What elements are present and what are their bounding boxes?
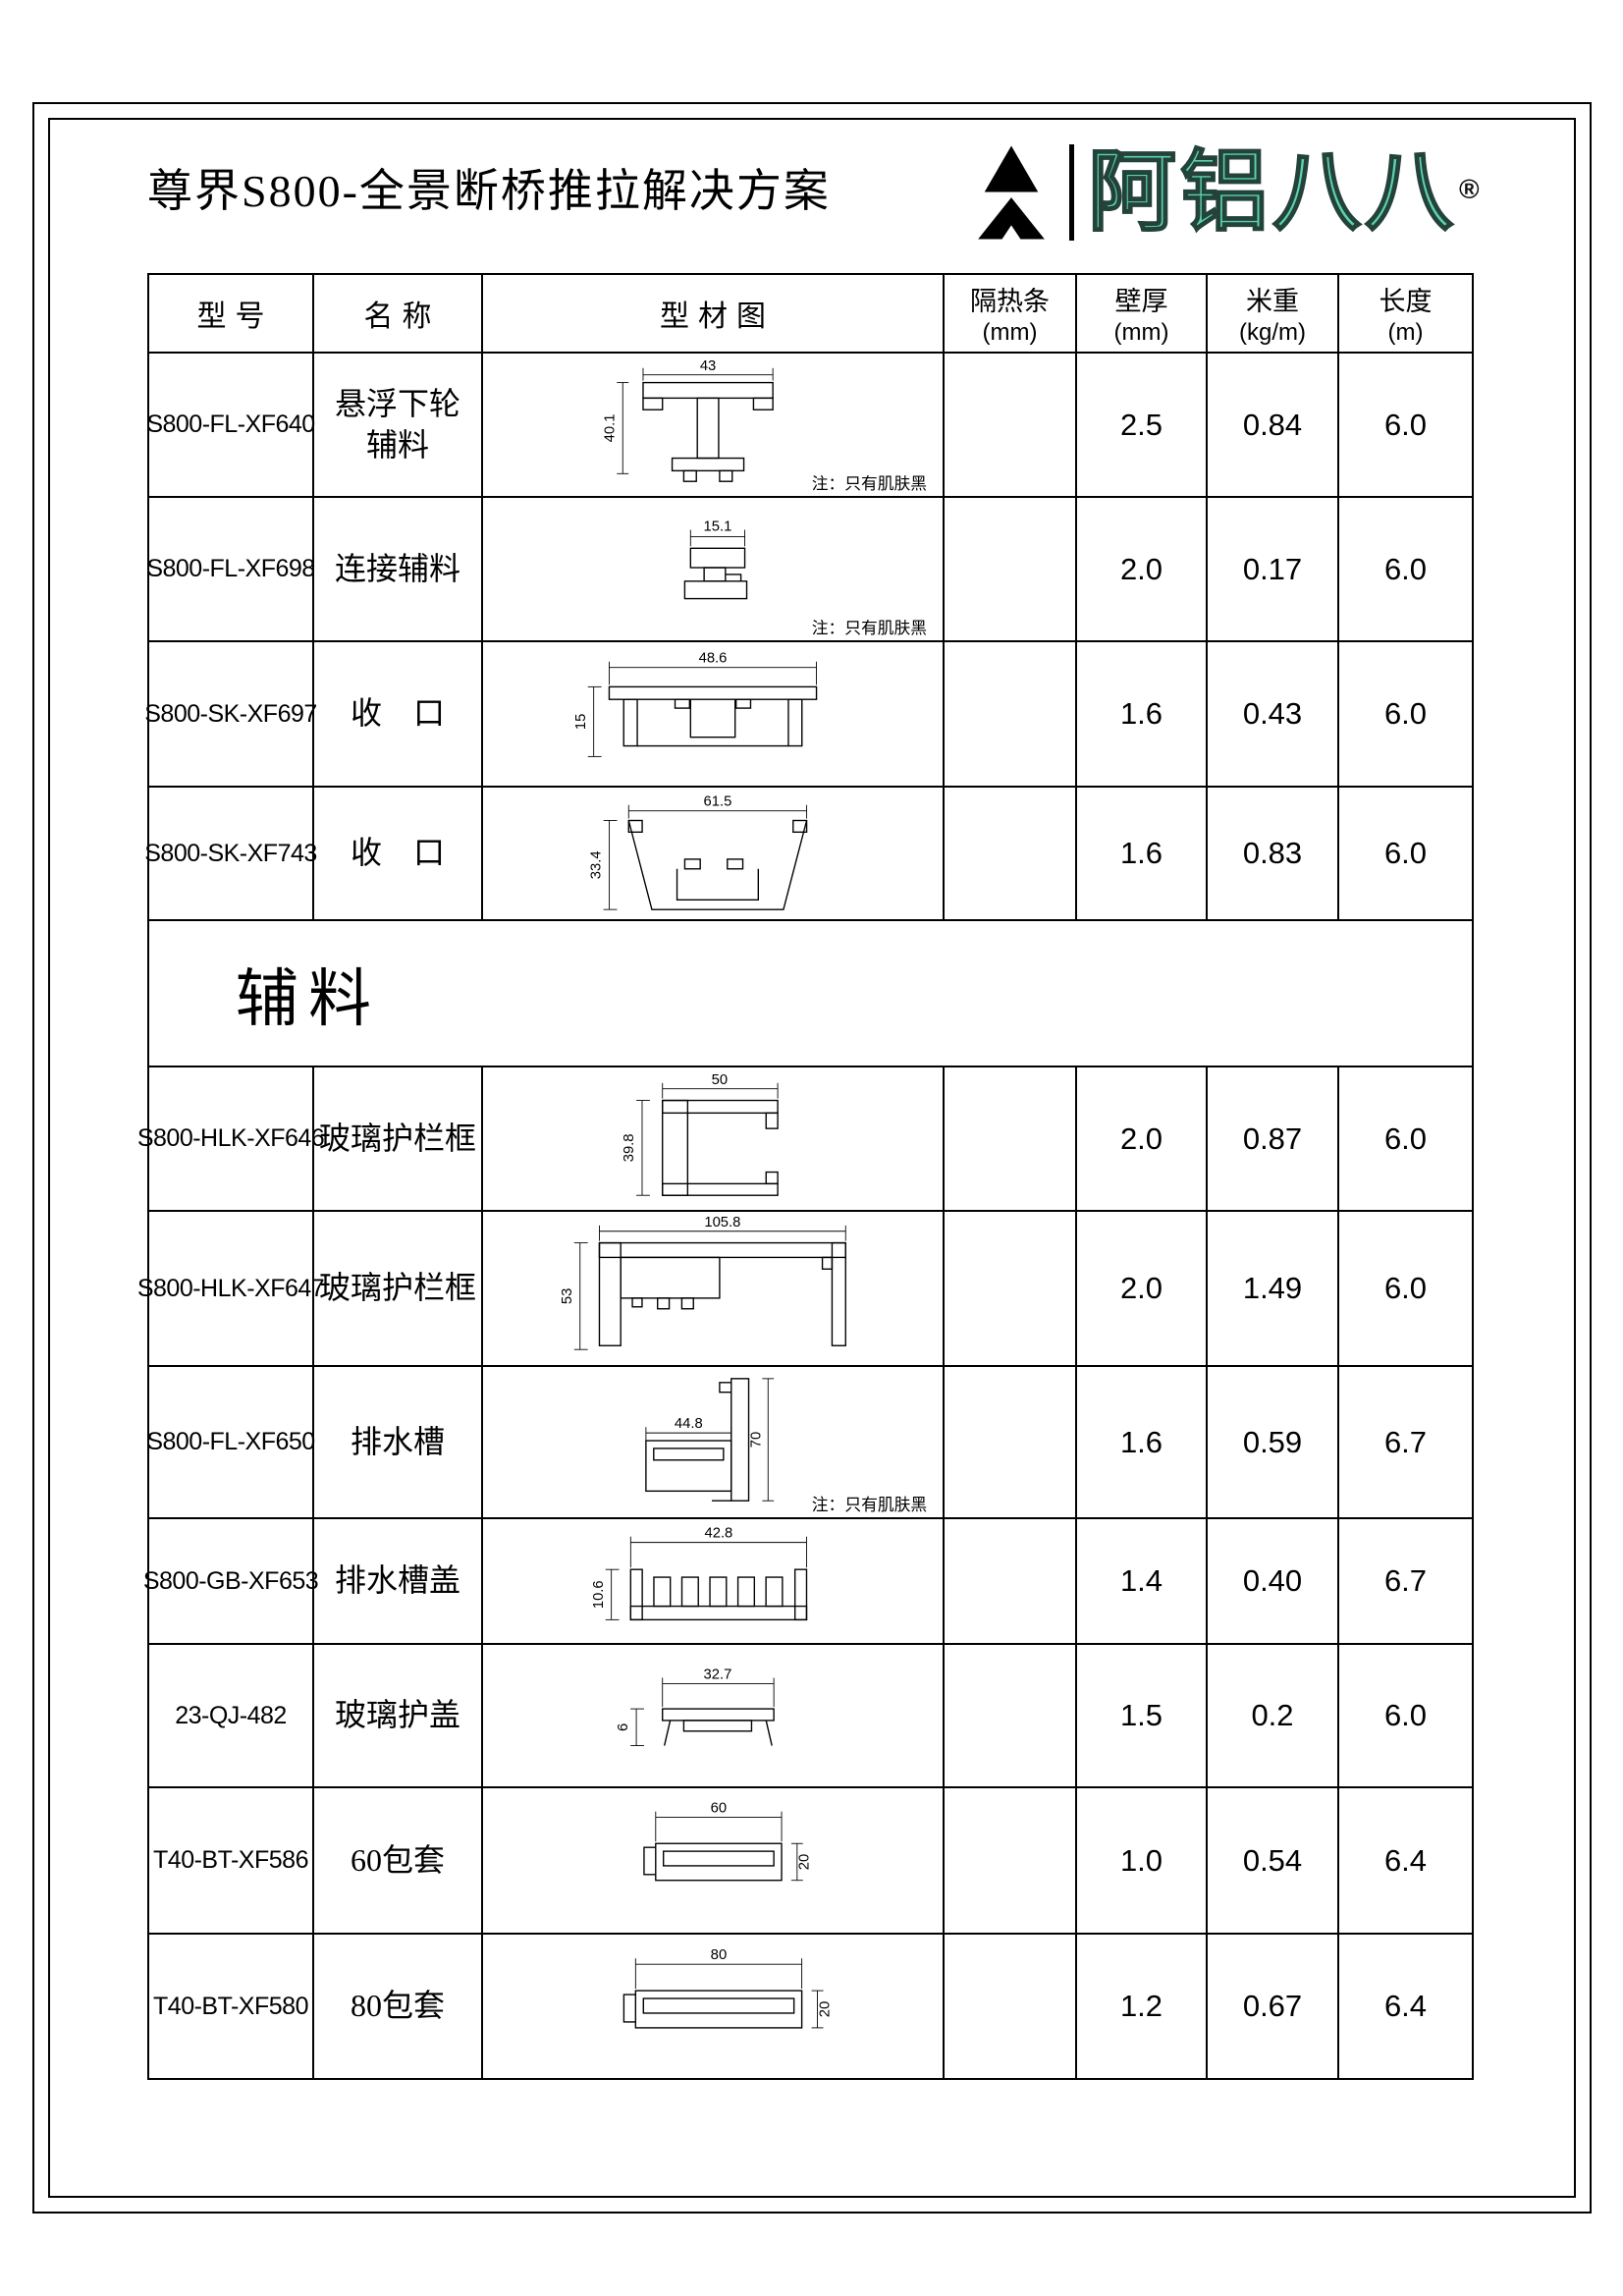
cell-profile-diagram: 15.1 注：只有肌肤黑	[483, 498, 945, 642]
brand-name: 阿铝八八®	[1088, 143, 1484, 242]
cell-insulation	[945, 1519, 1077, 1645]
drawing-sheet: 尊界S800-全景断桥推拉解决方案 阿铝八八® 型号 名称 型材图 隔热条 (m…	[0, 0, 1623, 2296]
cell-wall-thickness: 2.5	[1077, 354, 1208, 498]
profile-drawing: 105.8 53	[483, 1212, 943, 1365]
dim-height-label: 15	[573, 714, 589, 730]
cell-profile-diagram: 60 20	[483, 1788, 945, 1935]
col-header-name: 名称	[314, 275, 483, 354]
cell-profile-diagram: 105.8 53	[483, 1212, 945, 1367]
header-unit: (mm)	[1114, 319, 1169, 347]
profile-note: 注：只有肌肤黑	[812, 474, 927, 493]
brand-text: 阿铝八八	[1088, 143, 1457, 242]
dim-width-label: 105.8	[704, 1215, 740, 1230]
cell-insulation	[945, 1067, 1077, 1212]
cell-model: 23-QJ-482	[149, 1645, 314, 1788]
cell-model: T40-BT-XF586	[149, 1788, 314, 1935]
cell-wall-thickness: 1.5	[1077, 1645, 1208, 1788]
cell-name: 收 口	[314, 642, 483, 788]
header-label: 长度	[1380, 280, 1433, 318]
dim-width-label: 48.6	[699, 651, 728, 667]
profile-drawing: 48.6 15	[483, 642, 943, 786]
cell-wall-thickness: 2.0	[1077, 1067, 1208, 1212]
profile-drawing: 80 20	[483, 1935, 943, 2078]
cell-meter-weight: 0.2	[1208, 1645, 1339, 1788]
dim-height-label: 53	[560, 1288, 575, 1304]
dim-width-label: 60	[711, 1801, 727, 1817]
cell-profile-diagram: 42.8 10.6	[483, 1519, 945, 1645]
cell-model: S800-FL-XF698	[149, 498, 314, 642]
cell-name: 玻璃护栏框	[314, 1212, 483, 1367]
cell-meter-weight: 0.59	[1208, 1367, 1339, 1519]
header-label: 米重	[1246, 280, 1299, 318]
col-header-length: 长度 (m)	[1339, 275, 1472, 354]
cell-model: S800-HLK-XF646	[149, 1067, 314, 1212]
cell-insulation	[945, 1645, 1077, 1788]
cell-name: 玻璃护盖	[314, 1645, 483, 1788]
profile-spec-table: 型号 名称 型材图 隔热条 (mm) 壁厚 (mm) 米重 (kg/m) 长度 …	[147, 273, 1474, 2080]
name-line2: 辅料	[335, 425, 460, 466]
cell-name: 80包套	[314, 1935, 483, 2078]
dim-height-label: 39.8	[622, 1133, 637, 1162]
registered-mark: ®	[1459, 174, 1484, 204]
cell-profile-diagram: 61.5 33.4	[483, 788, 945, 921]
dim-height-label: 20	[797, 1854, 813, 1870]
cell-meter-weight: 1.49	[1208, 1212, 1339, 1367]
col-header-weight: 米重 (kg/m)	[1208, 275, 1339, 354]
header-label: 壁厚	[1115, 280, 1168, 318]
profile-drawing: 15.1 注：只有肌肤黑	[483, 498, 943, 640]
cell-insulation	[945, 498, 1077, 642]
cell-wall-thickness: 2.0	[1077, 498, 1208, 642]
dim-width-label: 80	[711, 1946, 728, 1963]
header-unit: (m)	[1388, 319, 1424, 347]
cell-wall-thickness: 1.6	[1077, 1367, 1208, 1519]
profile-drawing: 61.5 33.4	[483, 788, 943, 919]
dim-height-label: 40.1	[602, 414, 618, 443]
header-unit: (kg/m)	[1239, 319, 1306, 347]
cell-wall-thickness: 1.6	[1077, 788, 1208, 921]
cell-meter-weight: 0.17	[1208, 498, 1339, 642]
cell-profile-diagram: 43 40.1 注：只有肌肤黑	[483, 354, 945, 498]
profile-note: 注：只有肌肤黑	[812, 619, 927, 637]
cell-length: 6.0	[1339, 1645, 1472, 1788]
dim-width-label: 43	[700, 358, 716, 374]
dim-width-label: 42.8	[705, 1526, 733, 1542]
section-header-accessories: 辅料	[149, 921, 1472, 1067]
dim-height-label: 6	[616, 1723, 631, 1731]
cell-insulation	[945, 642, 1077, 788]
dim-width-label: 32.7	[704, 1667, 732, 1683]
cell-model: T40-BT-XF580	[149, 1935, 314, 2078]
header-label: 隔热条	[970, 280, 1050, 318]
dim-height-label: 70	[748, 1432, 764, 1448]
cell-model: S800-HLK-XF647	[149, 1212, 314, 1367]
cell-insulation	[945, 788, 1077, 921]
cell-profile-diagram: 50 39.8	[483, 1067, 945, 1212]
cell-name: 连接辅料	[314, 498, 483, 642]
col-header-wall: 壁厚 (mm)	[1077, 275, 1208, 354]
brand-logo: 阿铝八八®	[965, 143, 1484, 242]
cell-model: S800-SK-XF743	[149, 788, 314, 921]
col-header-model: 型号	[149, 275, 314, 354]
cell-wall-thickness: 1.4	[1077, 1519, 1208, 1645]
brand-triangle-icon	[965, 143, 1057, 242]
cell-model: S800-FL-XF650	[149, 1367, 314, 1519]
cell-wall-thickness: 1.0	[1077, 1788, 1208, 1935]
cell-insulation	[945, 354, 1077, 498]
cell-meter-weight: 0.40	[1208, 1519, 1339, 1645]
profile-drawing: 42.8 10.6	[483, 1519, 943, 1643]
cell-length: 6.4	[1339, 1935, 1472, 2078]
cell-name: 排水槽	[314, 1367, 483, 1519]
cell-meter-weight: 0.43	[1208, 642, 1339, 788]
profile-drawing: 32.7 6	[483, 1645, 943, 1786]
name-line1: 悬浮下轮	[335, 386, 460, 421]
cell-profile-diagram: 44.8 70 注：只有肌肤黑	[483, 1367, 945, 1519]
cell-model: S800-GB-XF653	[149, 1519, 314, 1645]
cell-wall-thickness: 1.2	[1077, 1935, 1208, 2078]
cell-meter-weight: 0.67	[1208, 1935, 1339, 2078]
cell-meter-weight: 0.84	[1208, 354, 1339, 498]
profile-drawing: 44.8 70 注：只有肌肤黑	[483, 1367, 943, 1517]
dim-width-label: 50	[712, 1072, 728, 1088]
cell-insulation	[945, 1788, 1077, 1935]
dim-width-label: 44.8	[675, 1416, 703, 1432]
profile-drawing: 60 20	[483, 1788, 943, 1933]
cell-insulation	[945, 1935, 1077, 2078]
dim-height-label: 20	[816, 2001, 833, 2018]
cell-meter-weight: 0.54	[1208, 1788, 1339, 1935]
cell-length: 6.0	[1339, 642, 1472, 788]
cell-length: 6.0	[1339, 498, 1472, 642]
cell-profile-diagram: 80 20	[483, 1935, 945, 2078]
cell-length: 6.0	[1339, 1212, 1472, 1367]
cell-meter-weight: 0.87	[1208, 1067, 1339, 1212]
cell-insulation	[945, 1212, 1077, 1367]
cell-wall-thickness: 2.0	[1077, 1212, 1208, 1367]
dim-width-label: 61.5	[704, 794, 732, 810]
cell-name: 60包套	[314, 1788, 483, 1935]
cell-meter-weight: 0.83	[1208, 788, 1339, 921]
cell-profile-diagram: 32.7 6	[483, 1645, 945, 1788]
cell-wall-thickness: 1.6	[1077, 642, 1208, 788]
cell-length: 6.0	[1339, 1067, 1472, 1212]
dim-height-label: 10.6	[591, 1580, 607, 1609]
cell-model: S800-FL-XF640	[149, 354, 314, 498]
cell-length: 6.0	[1339, 354, 1472, 498]
dim-height-label: 33.4	[589, 850, 605, 879]
cell-length: 6.0	[1339, 788, 1472, 921]
cell-insulation	[945, 1367, 1077, 1519]
cell-profile-diagram: 48.6 15	[483, 642, 945, 788]
cell-name: 收 口	[314, 788, 483, 921]
logo-divider	[1069, 144, 1074, 241]
page-title: 尊界S800-全景断桥推拉解决方案	[147, 155, 831, 216]
col-header-diagram: 型材图	[483, 275, 945, 354]
cell-model: S800-SK-XF697	[149, 642, 314, 788]
cell-length: 6.7	[1339, 1519, 1472, 1645]
cell-name: 排水槽盖	[314, 1519, 483, 1645]
profile-drawing: 43 40.1 注：只有肌肤黑	[483, 354, 943, 496]
profile-drawing: 50 39.8	[483, 1067, 943, 1210]
col-header-insulation: 隔热条 (mm)	[945, 275, 1077, 354]
cell-length: 6.4	[1339, 1788, 1472, 1935]
profile-note: 注：只有肌肤黑	[812, 1496, 927, 1514]
cell-length: 6.7	[1339, 1367, 1472, 1519]
cell-name: 悬浮下轮辅料	[314, 354, 483, 498]
dim-width-label: 15.1	[704, 519, 732, 535]
cell-name: 玻璃护栏框	[314, 1067, 483, 1212]
header-unit: (mm)	[983, 319, 1038, 347]
